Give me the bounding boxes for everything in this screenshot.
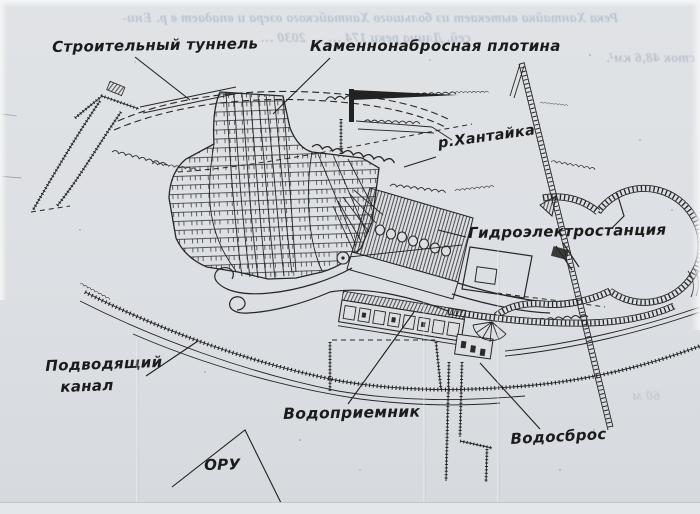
label-construction-tunnel: Строительный туннель <box>52 34 258 56</box>
label-supply-channel-line2: канал <box>60 376 114 396</box>
transmission-line <box>510 62 613 430</box>
label-switchyard: ОРУ <box>204 455 241 474</box>
rockfill-dam-body <box>169 92 379 279</box>
label-water-intake: Водоприемник <box>283 403 420 423</box>
scanned-diagram-page: Река Хантайка вытекает из большого Ханта… <box>0 0 700 514</box>
label-power-station: Гидроэлектростанция <box>468 221 667 242</box>
label-leaders <box>135 57 540 511</box>
water-intake-structure <box>338 291 466 345</box>
label-rockfill-dam: Каменнонабросная плотина <box>310 37 561 55</box>
spillway-structure <box>446 322 506 482</box>
